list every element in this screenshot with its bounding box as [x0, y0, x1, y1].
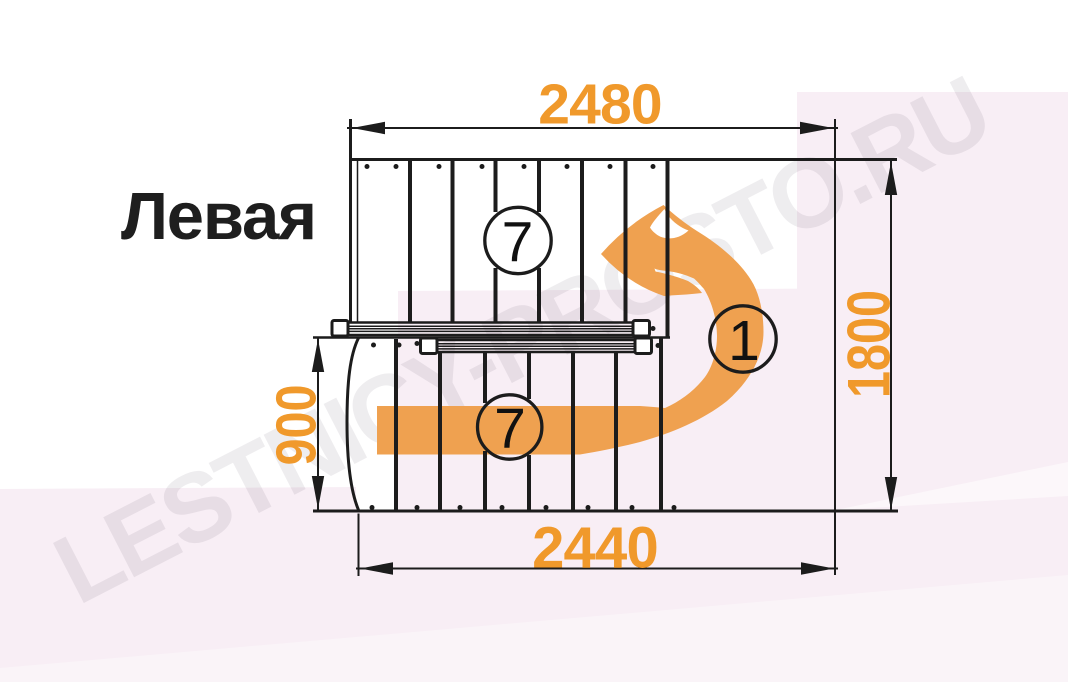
svg-text:7: 7	[494, 397, 526, 461]
svg-text:1800: 1800	[836, 290, 903, 398]
svg-text:Левая: Левая	[121, 179, 316, 254]
svg-text:2440: 2440	[532, 516, 658, 581]
svg-text:7: 7	[502, 211, 534, 275]
svg-text:1: 1	[728, 309, 760, 373]
svg-text:2480: 2480	[538, 73, 662, 137]
svg-text:900: 900	[265, 385, 329, 466]
